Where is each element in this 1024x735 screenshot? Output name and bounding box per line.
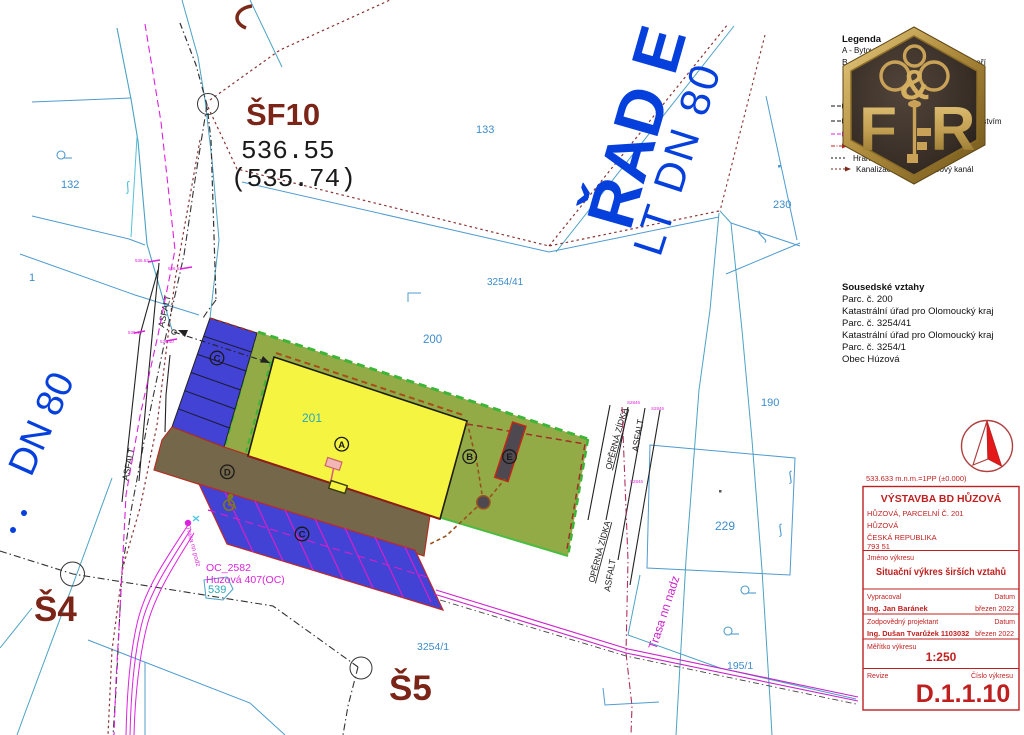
svg-text:HŮZOVÁ: HŮZOVÁ [867,521,898,530]
svg-text:C: C [214,354,221,365]
svg-text:229: 229 [715,519,735,533]
svg-text:Huzová 407(OC): Huzová 407(OC) [206,574,285,586]
svg-text:Katastrální úřad pro Olomoucký: Katastrální úřad pro Olomoucký kraj [842,330,994,341]
svg-text:Revize: Revize [867,673,889,680]
svg-text:S2846: S2846 [651,406,665,411]
svg-text:ČESKÁ REPUBLIKA: ČESKÁ REPUBLIKA [867,533,937,542]
svg-text:R: R [931,95,976,164]
svg-text:1: 1 [29,272,35,284]
svg-text:OC_2582: OC_2582 [206,562,251,574]
svg-text:D.1.1.10: D.1.1.10 [916,680,1011,708]
svg-text:Katastrální úřad pro Olomoucký: Katastrální úřad pro Olomoucký kraj [842,306,994,317]
svg-text:Zodpovědný projektant: Zodpovědný projektant [867,619,938,626]
svg-text:březen 2022: březen 2022 [975,606,1014,613]
svg-text:200: 200 [423,334,442,346]
svg-text:536.63: 536.63 [135,258,149,263]
svg-text:Sousedské vztahy: Sousedské vztahy [842,282,925,293]
svg-text:230: 230 [773,199,791,211]
svg-text:Situační výkres širších vztahů: Situační výkres širších vztahů [876,566,1006,578]
svg-text:Jméno výkresu: Jméno výkresu [867,555,914,562]
svg-text:Datum: Datum [994,594,1015,601]
svg-text:Š4: Š4 [34,589,77,629]
svg-text:E: E [506,452,512,463]
svg-text:březen 2022: březen 2022 [975,631,1014,638]
svg-text:S2846: S2846 [630,479,644,484]
svg-text:536.40: 536.40 [160,339,174,344]
svg-text:793 51: 793 51 [867,542,890,551]
svg-text:Vypracoval: Vypracoval [867,594,902,601]
svg-text:3254/1: 3254/1 [417,641,449,653]
svg-text:Číslo výkresu: Číslo výkresu [971,671,1013,680]
svg-text:Datum: Datum [994,619,1015,626]
svg-text:132: 132 [61,179,79,191]
svg-text:3254/41: 3254/41 [487,277,524,288]
svg-text:536.63: 536.63 [168,266,182,271]
svg-text:Š5: Š5 [389,668,432,708]
svg-text:Parc. č. 3254/41: Parc. č. 3254/41 [842,318,911,329]
svg-text:Legenda: Legenda [842,34,882,45]
svg-text:C: C [299,530,306,541]
svg-text:536.40: 536.40 [128,330,142,335]
svg-text:A: A [338,440,345,451]
svg-text:536.55: 536.55 [241,136,335,166]
svg-text:B: B [466,452,473,463]
svg-text:1:250: 1:250 [926,650,957,664]
svg-text:195/1: 195/1 [727,660,753,672]
svg-text:(535.74): (535.74) [231,164,356,194]
svg-text:S2846: S2846 [627,400,641,405]
svg-text:Parc. č. 200: Parc. č. 200 [842,294,893,305]
svg-text:D: D [224,467,231,478]
svg-text:Ing. Jan Baránek: Ing. Jan Baránek [867,604,929,613]
svg-text:Parc. č. 3254/1: Parc. č. 3254/1 [842,342,906,353]
svg-text:F: F [859,95,897,164]
svg-text:201: 201 [302,411,322,425]
svg-text:190: 190 [761,397,779,409]
svg-text:Ing. Dušan Tvarůžek 1103032: Ing. Dušan Tvarůžek 1103032 [867,629,969,638]
svg-text:533.633 m.n.m.=1PP (±0.000): 533.633 m.n.m.=1PP (±0.000) [866,474,967,483]
svg-text:Měřítko výkresu: Měřítko výkresu [867,644,917,651]
svg-text:133: 133 [476,124,494,136]
svg-text:VÝSTAVBA BD HŮZOVÁ: VÝSTAVBA BD HŮZOVÁ [881,491,1002,505]
svg-text:ŠF10: ŠF10 [246,96,320,132]
svg-text:HŮZOVÁ, PARCELNÍ Č. 201: HŮZOVÁ, PARCELNÍ Č. 201 [867,509,964,518]
svg-text:Obec Húzová: Obec Húzová [842,354,900,365]
